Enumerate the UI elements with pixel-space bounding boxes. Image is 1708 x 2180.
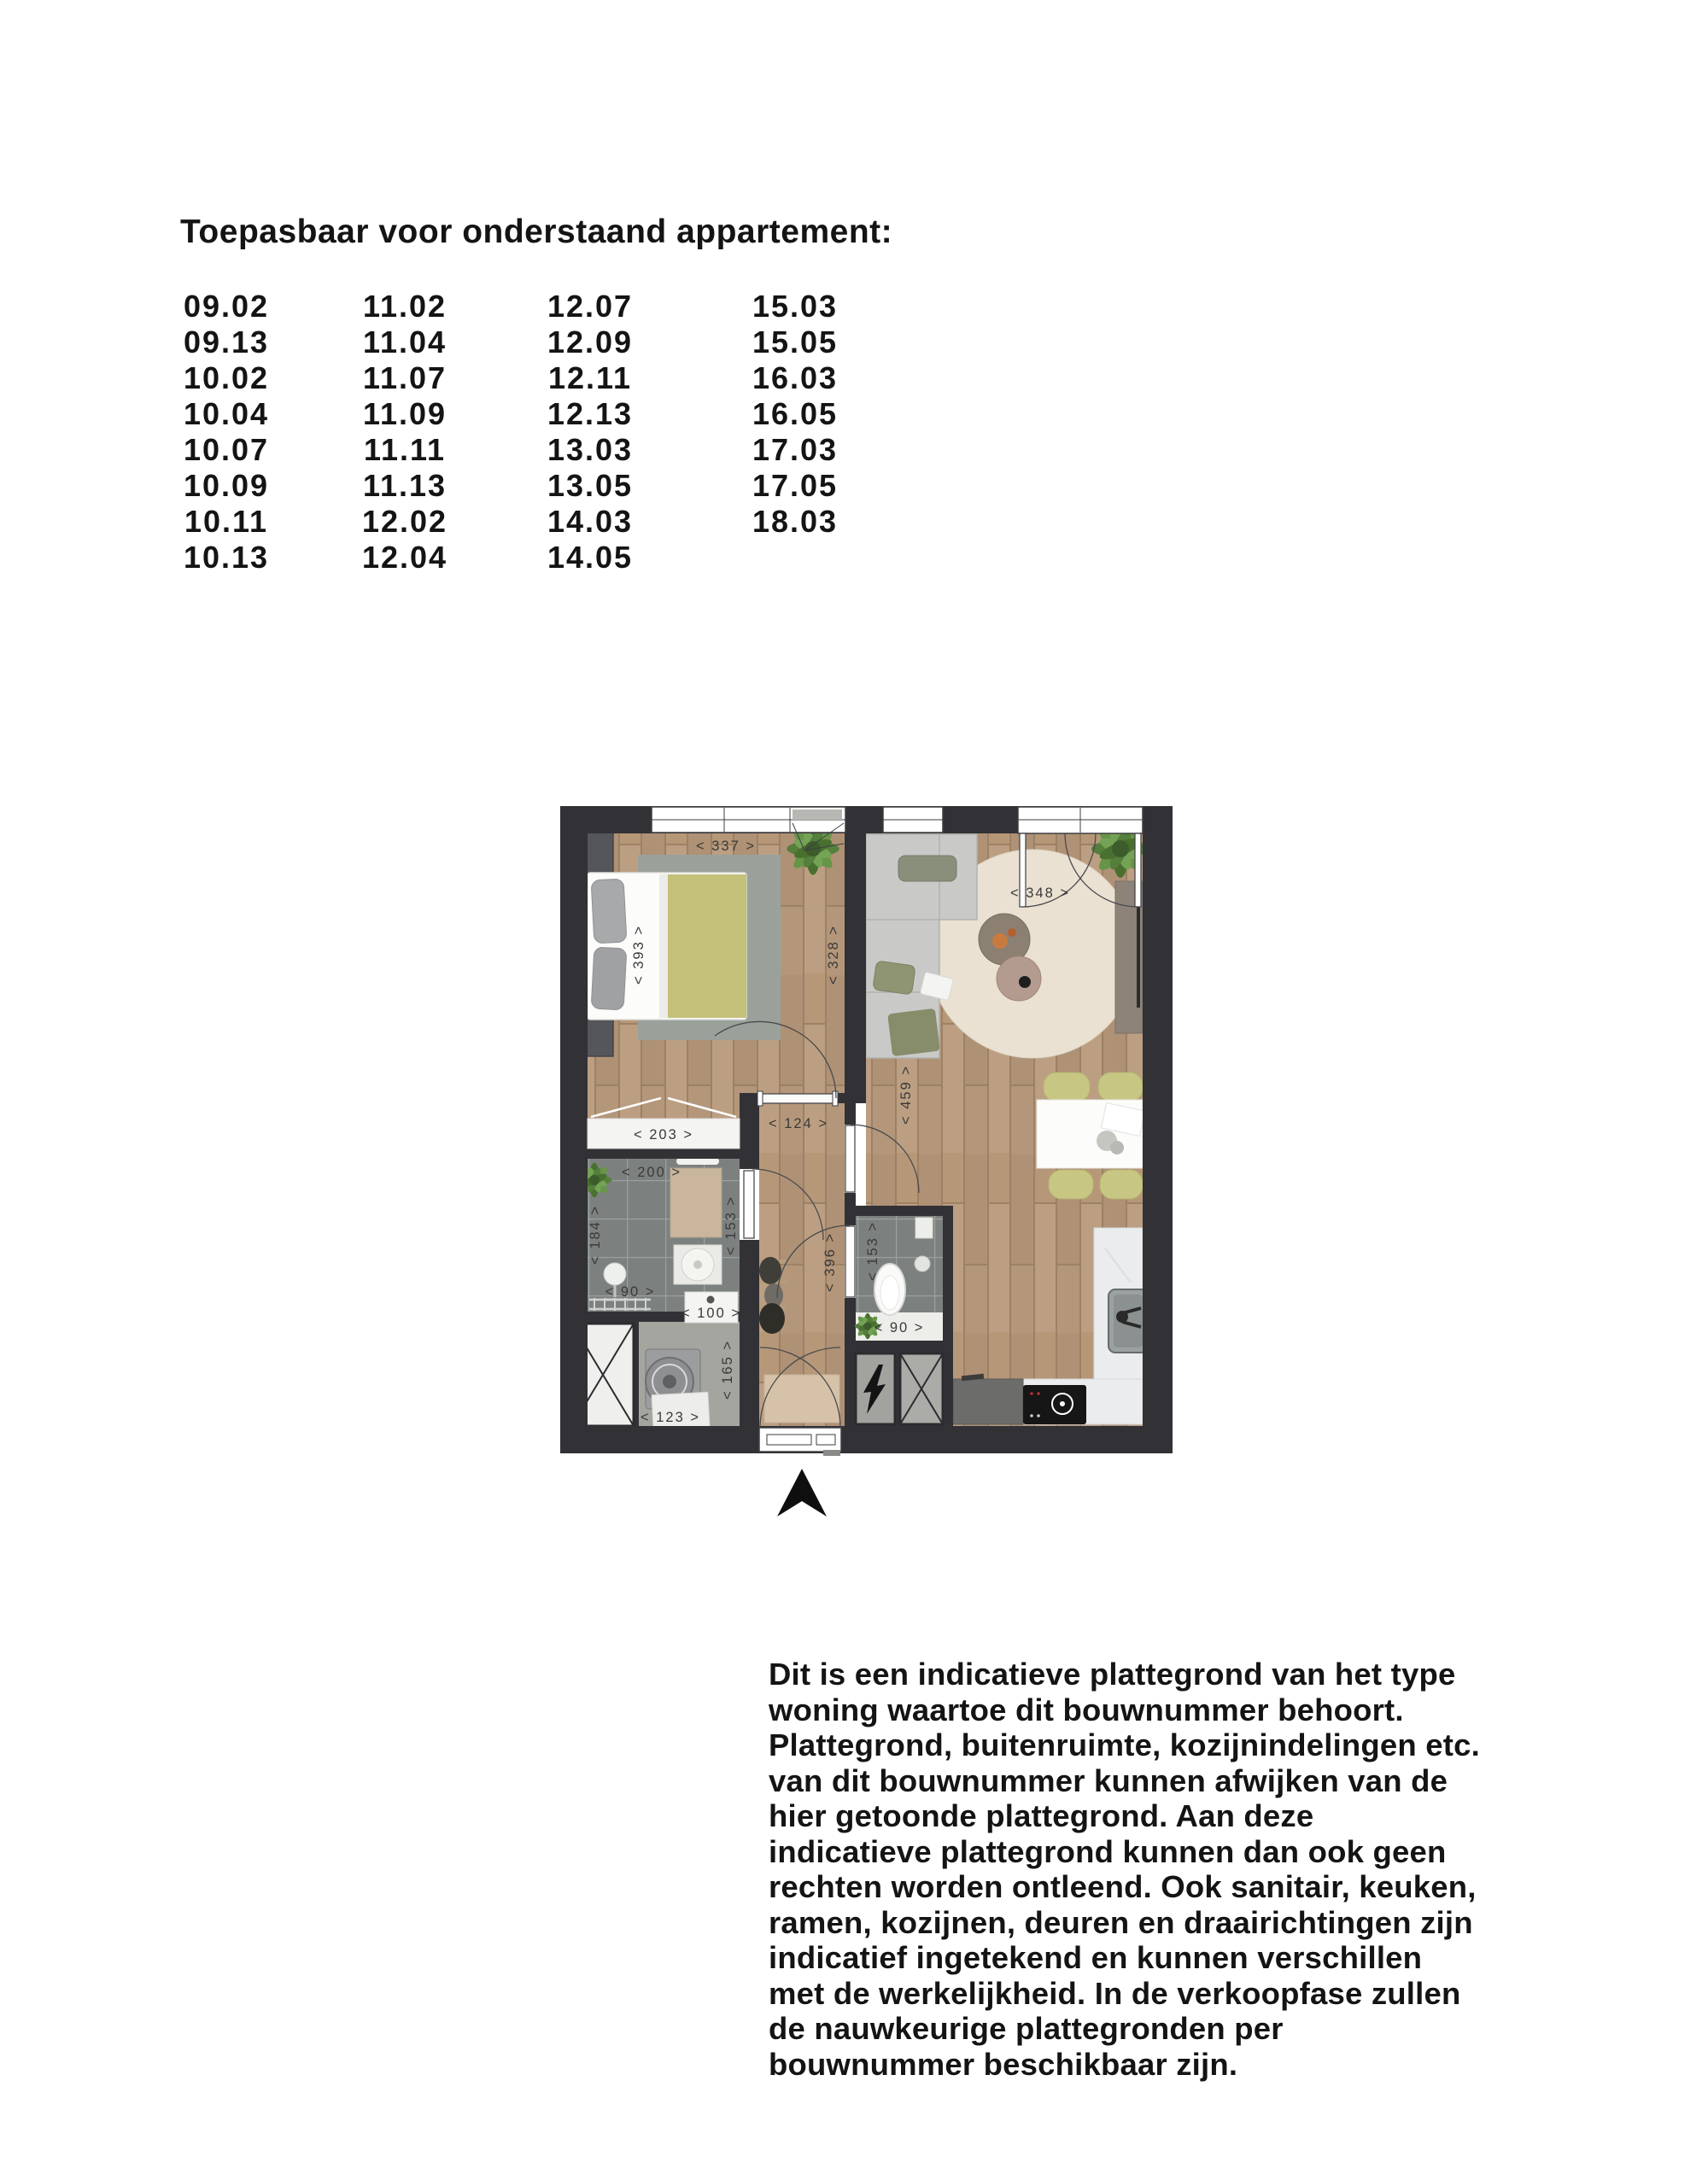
apartment-number: 18.03 <box>744 504 846 540</box>
toilet-roll <box>915 1256 930 1271</box>
living-door-leaf <box>845 1125 855 1192</box>
dim-label: < 90 > <box>874 1320 925 1335</box>
bed-blanket <box>668 874 746 1018</box>
apartment-number: 12.04 <box>354 540 456 576</box>
balcony-door-leaf <box>1135 833 1141 907</box>
dining-chair <box>1100 1170 1143 1199</box>
disclaimer-text: Dit is een indicatieve plattegrond van h… <box>769 1657 1623 2082</box>
dim-label: < 459 > <box>898 1065 914 1125</box>
dim-label: < 348 > <box>1010 885 1070 901</box>
window-sash <box>793 809 842 820</box>
dim-label: < 393 > <box>631 925 646 985</box>
floorplan-svg: < 337 > < 393 > < 328 > < 348 > < 459 > … <box>550 796 1192 1460</box>
apartment-number: 11.11 <box>354 432 456 468</box>
bedroom-door-leaf <box>759 1094 836 1103</box>
dining-chair <box>1098 1072 1143 1102</box>
apartment-number: 17.03 <box>744 432 846 468</box>
dim-label: < 124 > <box>769 1116 828 1131</box>
apartment-number: 10.09 <box>175 468 278 504</box>
sofa-pillow <box>898 856 956 881</box>
disclaimer-line: ramen, kozijnen, deuren en draairichting… <box>769 1905 1623 1941</box>
apartment-number-table: 09.0209.1310.0210.0410.0710.0910.1110.13… <box>175 289 858 596</box>
disclaimer-line: indicatief ingetekend en kunnen verschil… <box>769 1940 1623 1976</box>
kitchen-sink-basin <box>1114 1295 1143 1347</box>
dim-label: < 100 > <box>681 1306 741 1321</box>
tv <box>1137 907 1140 1008</box>
dim-label: < 200 > <box>622 1165 681 1180</box>
apartment-number: 11.07 <box>354 360 456 396</box>
dim-label: < 153 > <box>865 1221 880 1281</box>
dim-label: < 203 > <box>634 1127 693 1143</box>
bed-sheet-fold <box>659 874 668 1018</box>
wc-cabinet <box>915 1218 933 1238</box>
shelf-knob <box>707 1296 715 1304</box>
coat <box>759 1257 781 1284</box>
dim-label: < 90 > <box>605 1284 656 1300</box>
speaker <box>1019 976 1031 988</box>
apartment-number: 10.11 <box>175 504 278 540</box>
apartment-number: 12.09 <box>539 324 641 360</box>
cooktop-knob <box>1060 1401 1065 1406</box>
apartment-number: 17.05 <box>744 468 846 504</box>
doormat <box>764 1375 839 1423</box>
disclaimer-line: Dit is een indicatieve plattegrond van h… <box>769 1657 1623 1692</box>
wall-bedroom-living <box>845 833 866 1103</box>
dim-label: < 396 > <box>822 1232 838 1292</box>
floorplan-page: { "title": "Toepasbaar voor onderstaand … <box>0 0 1708 2180</box>
apartment-number: 14.03 <box>539 504 641 540</box>
apartment-number: 16.03 <box>744 360 846 396</box>
disclaimer-line: hier getoonde plattegrond. Aan deze <box>769 1798 1623 1834</box>
disclaimer-line: met de werkelijkheid. In de verkoopfase … <box>769 1976 1623 2012</box>
apartment-column-3: 12.0712.0912.1112.1313.0313.0514.0314.05 <box>539 289 641 576</box>
apartment-number: 13.05 <box>539 468 641 504</box>
page-title: Toepasbaar voor onderstaand appartement: <box>180 213 892 251</box>
apartment-column-4: 15.0315.0516.0316.0517.0317.0518.03 <box>744 289 846 540</box>
apartment-column-1: 09.0209.1310.0210.0410.0710.0910.1110.13 <box>175 289 278 576</box>
dim-label: < 165 > <box>720 1340 735 1400</box>
disclaimer-line: rechten worden ontleend. Ook sanitair, k… <box>769 1869 1623 1905</box>
apartment-number: 12.02 <box>354 504 456 540</box>
coffee-table-decor <box>1008 928 1016 937</box>
wc-door-leaf <box>845 1226 855 1297</box>
apartment-number: 13.03 <box>539 432 641 468</box>
apartment-number: 15.03 <box>744 289 846 324</box>
towel <box>676 1158 719 1165</box>
dim-label: < 328 > <box>826 925 841 985</box>
kitchen-counter-dark <box>953 1379 1023 1424</box>
dim-label: < 153 > <box>723 1195 739 1255</box>
apartment-number: 10.04 <box>175 396 278 432</box>
dim-label: < 123 > <box>640 1410 700 1425</box>
coat <box>759 1303 785 1334</box>
dim-label: < 337 > <box>696 839 756 854</box>
floorplan-image: < 337 > < 393 > < 328 > < 348 > < 459 > … <box>550 796 1192 1460</box>
apartment-number: 10.02 <box>175 360 278 396</box>
apartment-number: 16.05 <box>744 396 846 432</box>
toilet-bowl <box>880 1276 899 1310</box>
disclaimer-line: woning waartoe dit bouwnummer behoort. <box>769 1692 1623 1728</box>
coffee-table-decor <box>992 933 1008 949</box>
bed-pillow <box>591 879 627 944</box>
apartment-number: 15.05 <box>744 324 846 360</box>
sofa-pillow <box>873 961 915 995</box>
apartment-number: 11.02 <box>354 289 456 324</box>
apartment-number: 12.13 <box>539 396 641 432</box>
apartment-column-2: 11.0211.0411.0711.0911.1111.1312.0212.04 <box>354 289 456 576</box>
washbasin <box>604 1263 626 1285</box>
dining-chair <box>1049 1170 1093 1199</box>
disclaimer-line: bouwnummer beschikbaar zijn. <box>769 2047 1623 2083</box>
disclaimer-line: Plattegrond, buitenruimte, kozijnindelin… <box>769 1727 1623 1763</box>
apartment-number: 09.02 <box>175 289 278 324</box>
bathroom-door-leaf <box>744 1171 754 1238</box>
table-decor <box>1110 1141 1124 1154</box>
sofa-throw <box>887 1008 940 1056</box>
apartment-number: 14.05 <box>539 540 641 576</box>
north-arrow-icon <box>752 1460 854 1528</box>
disclaimer-line: indicatieve plattegrond kunnen dan ook g… <box>769 1834 1623 1870</box>
apartment-number: 12.11 <box>539 360 641 396</box>
apartment-number: 10.07 <box>175 432 278 468</box>
shower-drain-center <box>693 1260 702 1269</box>
dim-label: < 184 > <box>588 1205 603 1265</box>
coffee-table <box>997 956 1041 1001</box>
apartment-number: 11.09 <box>354 396 456 432</box>
dining-chair <box>1044 1072 1090 1102</box>
disclaimer-line: de nauwkeurige plattegronden per <box>769 2011 1623 2047</box>
cooktop <box>1023 1385 1086 1424</box>
apartment-number: 11.04 <box>354 324 456 360</box>
door-handle <box>823 1450 840 1456</box>
apartment-number: 09.13 <box>175 324 278 360</box>
apartment-number: 11.13 <box>354 468 456 504</box>
apartment-number: 12.07 <box>539 289 641 324</box>
apartment-number: 10.13 <box>175 540 278 576</box>
entrance-door <box>759 1428 841 1452</box>
bed-pillow <box>591 947 627 1010</box>
disclaimer-line: van dit bouwnummer kunnen afwijken van d… <box>769 1763 1623 1799</box>
